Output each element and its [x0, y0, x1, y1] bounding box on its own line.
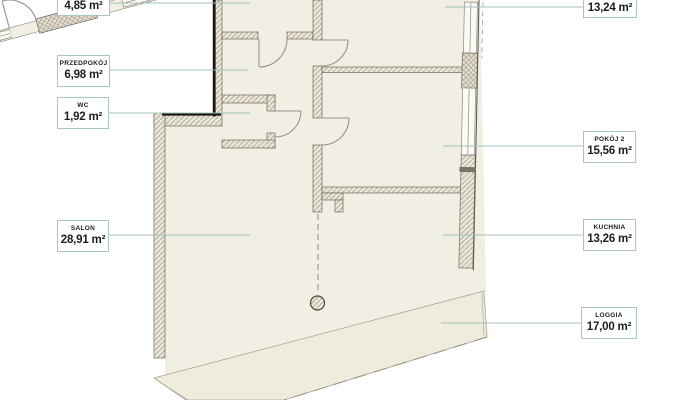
room-area: 6,98 m²	[64, 70, 102, 82]
room-name: SALON	[71, 226, 95, 233]
room-label-przedpokoj: PRZEDPOKÓJ 6,98 m²	[57, 55, 110, 87]
room-label-kuchnia: KUCHNIA 13,26 m²	[583, 219, 636, 251]
room-name: POKÓJ 2	[594, 137, 624, 144]
floor-plan-page: 4,85 m² PRZEDPOKÓJ 6,98 m² WC 1,92 m² SA…	[0, 0, 692, 400]
room-area: 4,85 m²	[64, 1, 102, 13]
room-label-loggia: LOGGIA 17,00 m²	[581, 307, 637, 339]
room-label-salon: SALON 28,91 m²	[57, 220, 109, 252]
room-area: 17,00 m²	[587, 322, 631, 334]
accent-edges	[162, 0, 221, 117]
room-label-top-right: 13,24 m²	[583, 0, 637, 18]
room-area: 15,56 m²	[587, 146, 631, 158]
structural-column	[311, 296, 325, 310]
room-label-pokoj-2: POKÓJ 2 15,56 m²	[583, 131, 636, 163]
room-area: 13,26 m²	[587, 234, 631, 246]
south-window-wall	[0, 0, 236, 71]
room-name: PRZEDPOKÓJ	[60, 61, 108, 68]
room-label-wc: WC 1,92 m²	[57, 97, 109, 129]
room-name: LOGGIA	[595, 313, 622, 320]
room-area: 13,24 m²	[588, 3, 632, 15]
room-name: KUCHNIA	[593, 225, 625, 232]
room-name: WC	[77, 103, 88, 110]
room-label-top-left: 4,85 m²	[57, 0, 110, 16]
room-area: 28,91 m²	[61, 235, 105, 247]
room-area: 1,92 m²	[64, 112, 102, 124]
